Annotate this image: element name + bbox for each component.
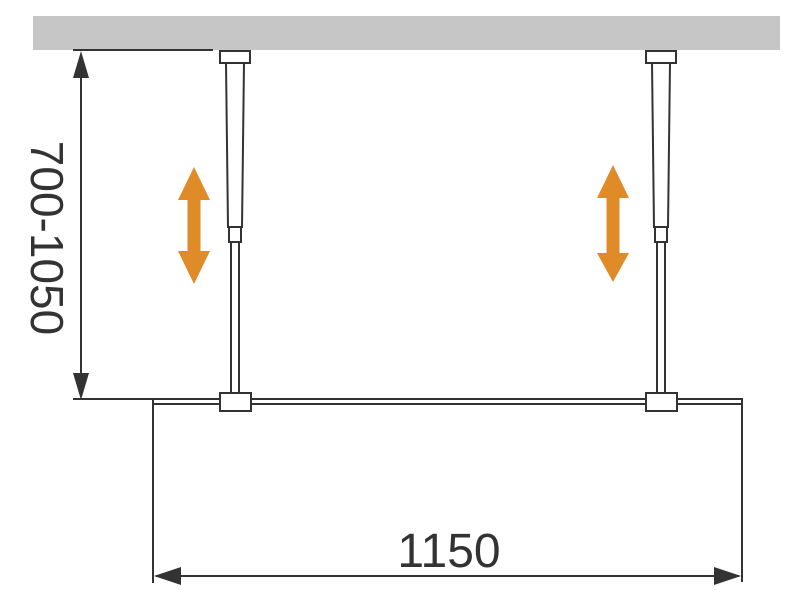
rod-lower-tube-left bbox=[231, 242, 239, 393]
installation-diagram: 700-1050 1150 bbox=[0, 0, 800, 599]
height-dimension-arrow-up-icon bbox=[73, 51, 89, 78]
diagram-canvas: 700-1050 1150 bbox=[0, 0, 800, 599]
height-dimension-arrow-down-icon bbox=[73, 373, 89, 400]
rod-lower-tube-right bbox=[657, 242, 665, 393]
glass-clamp-right bbox=[646, 393, 677, 411]
rod-upper-tube-right bbox=[652, 63, 670, 227]
height-dimension: 700-1050 bbox=[21, 51, 89, 400]
width-dimension-arrow-right-icon bbox=[714, 567, 741, 585]
adjustment-arrow-left-icon bbox=[178, 167, 210, 284]
height-dimension-label: 700-1050 bbox=[21, 141, 73, 335]
ceiling-bar bbox=[33, 16, 780, 50]
adjustment-arrow-right-icon bbox=[597, 165, 629, 282]
rod-ceiling-bracket-left bbox=[220, 51, 250, 63]
width-dimension: 1150 bbox=[154, 525, 741, 585]
width-dimension-arrow-left-icon bbox=[154, 567, 181, 585]
rod-upper-tube-left bbox=[226, 63, 244, 227]
support-rod-right bbox=[646, 51, 677, 411]
glass-clamp-left bbox=[220, 393, 251, 411]
rod-collar-left bbox=[229, 227, 241, 242]
support-rod-left bbox=[220, 51, 251, 411]
width-dimension-label: 1150 bbox=[397, 525, 500, 578]
rod-ceiling-bracket-right bbox=[646, 51, 676, 63]
rod-collar-right bbox=[655, 227, 667, 242]
